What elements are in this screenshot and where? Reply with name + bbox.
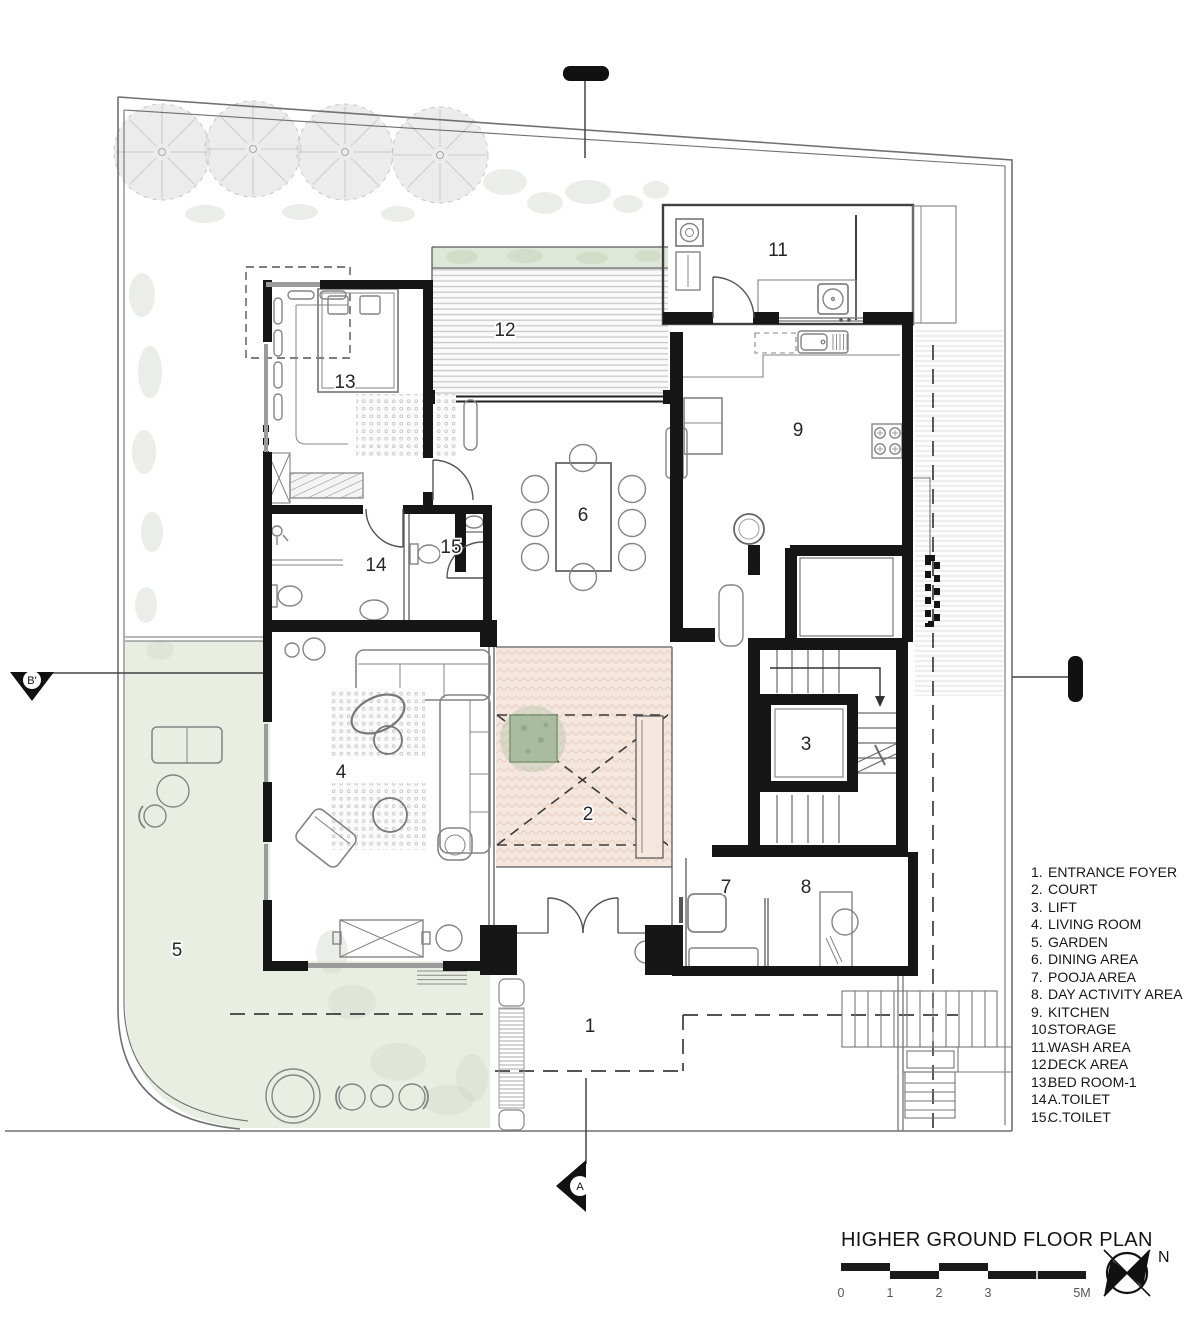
court-planter	[510, 715, 557, 762]
svg-text:4.: 4.	[1031, 916, 1043, 932]
scale-tick: 0	[838, 1286, 845, 1300]
room-label-a-toilet: 14	[365, 555, 387, 576]
room-label-day-activity-area: 8	[801, 877, 812, 898]
room-label-entrance-foyer: 1	[585, 1016, 596, 1037]
legend-item: STORAGE	[1048, 1021, 1116, 1037]
tree-icon	[297, 104, 393, 200]
scale-tick: 2	[936, 1286, 943, 1300]
legend-item: COURT	[1048, 881, 1098, 897]
living-rug-2	[332, 783, 427, 850]
svg-text:8.: 8.	[1031, 986, 1043, 1002]
court-bench	[636, 716, 663, 858]
legend-item: C.TOILET	[1048, 1109, 1111, 1125]
floor-plan-drawing: 1 2 3 4 5 6 7 8 9 11 12 13 14 15 B' A 1.…	[0, 0, 1200, 1323]
room-label-court: 2	[583, 804, 594, 825]
room-label-pooja-area: 7	[721, 877, 732, 898]
room-label-wash-area: 11	[768, 240, 788, 261]
scale-tick: 5M	[1073, 1286, 1090, 1300]
room-label-living-room: 4	[336, 762, 347, 783]
living-rug-1	[332, 688, 425, 757]
room-label-dining-area: 6	[578, 505, 589, 526]
legend-item: WASH AREA	[1048, 1039, 1131, 1055]
floor-plan-page: 1 2 3 4 5 6 7 8 9 11 12 13 14 15 B' A 1.…	[0, 0, 1200, 1323]
svg-text:3.: 3.	[1031, 899, 1043, 915]
scale-tick: 1	[887, 1286, 894, 1300]
legend-item: LIFT	[1048, 899, 1077, 915]
svg-text:2.: 2.	[1031, 881, 1043, 897]
wardrobe	[290, 473, 363, 498]
deck-fill	[432, 268, 668, 396]
svg-text:6.: 6.	[1031, 951, 1043, 967]
legend-item: A.TOILET	[1048, 1091, 1110, 1107]
svg-text:5.: 5.	[1031, 934, 1043, 950]
room-label-kitchen: 9	[793, 420, 804, 441]
legend-item: GARDEN	[1048, 934, 1108, 950]
legend-item: DINING AREA	[1048, 951, 1139, 967]
scale-tick: 3	[985, 1286, 992, 1300]
tree-icon	[114, 104, 210, 200]
legend-item: ENTRANCE FOYER	[1048, 864, 1177, 880]
svg-text:7.: 7.	[1031, 969, 1043, 985]
section-label-a: A	[576, 1181, 584, 1193]
legend-item: POOJA AREA	[1048, 969, 1137, 985]
bedroom-rug	[356, 394, 456, 456]
room-label-c-toilet: 15	[440, 537, 461, 558]
legend-item: LIVING ROOM	[1048, 916, 1141, 932]
room-label-deck-area: 12	[494, 320, 515, 341]
room-label-lift: 3	[801, 734, 812, 755]
door-leaf	[679, 897, 683, 923]
legend-item: DAY ACTIVITY AREA	[1048, 986, 1183, 1002]
room-label-bed-room-1: 13	[334, 372, 355, 393]
tree-icon	[205, 101, 301, 197]
svg-text:1.: 1.	[1031, 864, 1043, 880]
svg-text:11.: 11.	[1031, 1039, 1049, 1055]
north-label: N	[1158, 1249, 1170, 1266]
svg-text:9.: 9.	[1031, 1004, 1043, 1020]
page-title: HIGHER GROUND FLOOR PLAN	[841, 1229, 1153, 1251]
side-yard-stripes	[915, 328, 1003, 696]
legend-item: BED ROOM-1	[1048, 1074, 1137, 1090]
legend-item: KITCHEN	[1048, 1004, 1109, 1020]
legend-item: DECK AREA	[1048, 1056, 1129, 1072]
section-label-b: B'	[27, 675, 36, 687]
room-label-garden: 5	[172, 940, 183, 961]
